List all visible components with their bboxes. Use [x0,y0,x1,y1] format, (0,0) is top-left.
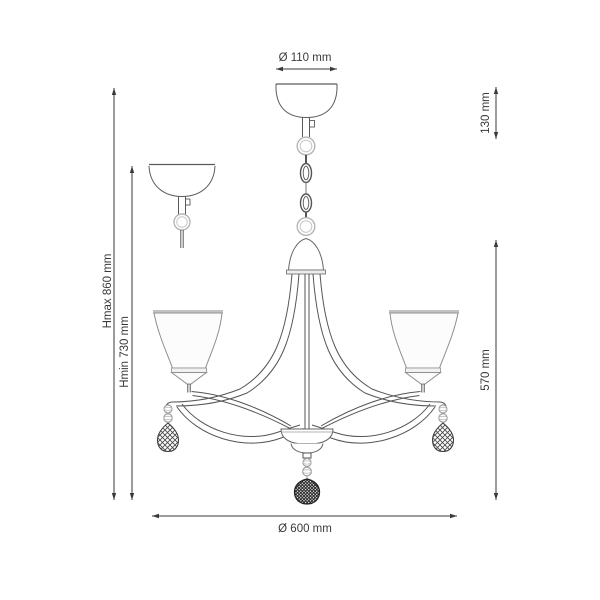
mini-canopy [149,165,215,249]
center-hub [281,429,333,504]
crystal-ball-icon [295,479,320,504]
arrow-left-icon [276,67,283,71]
canopy [276,84,337,137]
arrow-down-icon [494,493,498,500]
label-height-max: Hmax 860 mm [102,254,114,329]
arrow-up-icon [494,87,498,94]
bead-icon [303,459,311,467]
left-crystal-drop [158,404,179,452]
crystal-teardrop-icon [158,423,179,452]
central-column [305,274,309,429]
bead-icon [439,414,447,422]
arrow-down-icon [112,493,116,500]
arrow-right-icon [450,514,457,518]
crystal-teardrop-icon [433,423,454,452]
bell-cap [287,239,326,275]
bead-icon [164,414,172,422]
arrow-right-icon [330,67,337,71]
dim-suspension-length [494,87,498,139]
label-height-min: Hmin 730 mm [119,316,131,388]
arrow-up-icon [494,240,498,247]
dim-fixture-diameter [152,514,457,518]
arrow-down-icon [494,132,498,139]
label-fixture-diameter: Ø 600 mm [278,523,332,535]
label-body-height: 570 mm [480,349,492,391]
bead-icon [164,405,172,413]
dim-canopy-diameter [276,67,337,71]
dim-body-height [494,240,498,500]
arrow-down-icon [130,493,134,500]
label-canopy-diameter: Ø 110 mm [279,52,332,64]
chain [297,137,315,235]
bead-icon [303,467,312,476]
technical-drawing-canvas: Ø 110 mm 130 mm Hmax 860 mm Hmin 730 mm … [0,0,600,600]
right-shade [389,312,459,393]
arrow-up-icon [112,88,116,95]
left-shade [153,312,223,393]
arrow-left-icon [152,514,159,518]
bead-icon [439,405,447,413]
label-suspension-length: 130 mm [480,92,492,134]
arrow-up-icon [130,166,134,173]
right-crystal-drop [433,404,454,452]
chandelier-diagram: Ø 110 mm 130 mm Hmax 860 mm Hmin 730 mm … [0,0,600,600]
